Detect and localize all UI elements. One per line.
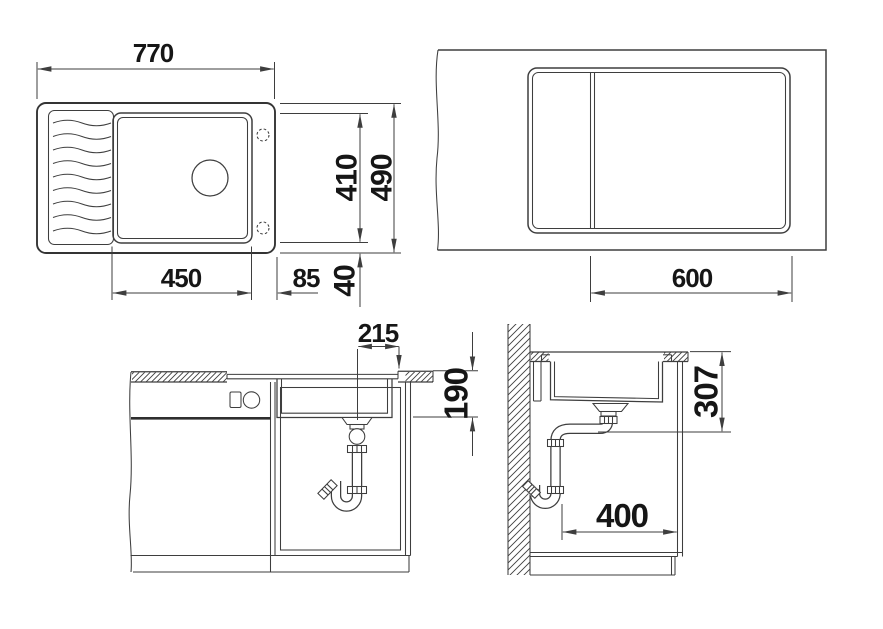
bowl-rim (113, 113, 252, 243)
counter-hatch-left (531, 352, 549, 361)
pipe-nut (548, 440, 564, 447)
countertop-cutout-plan-view: 600 (436, 50, 826, 302)
bowl-outer (277, 379, 392, 418)
dim-top-overall-depth: 490 (366, 154, 399, 201)
front-section-view: 215 190 (129, 318, 478, 572)
drainboard (49, 111, 114, 245)
dishwasher-display (230, 392, 241, 408)
pipe-nut (348, 487, 367, 494)
bowl-inner (282, 379, 388, 413)
dishwasher-knob (243, 392, 259, 408)
dim-top-bowl-length: 410 (331, 154, 364, 201)
bowl-inner (555, 362, 659, 399)
left-break-edge (129, 372, 131, 572)
drain-trap-front (318, 418, 372, 507)
sink-outline (37, 103, 275, 253)
dim-top-overall-width: 770 (133, 38, 174, 68)
cutout-outline (528, 68, 790, 233)
drain-flange (593, 404, 628, 412)
pipe-nut (600, 417, 617, 424)
sink-side-profile (534, 355, 672, 402)
wall-hatch (508, 324, 530, 575)
side-section-view: 307 400 (508, 324, 731, 575)
pipe-nut (348, 446, 367, 453)
sink-drawing-svg: 770 410 490 40 450 85 600 (0, 0, 883, 629)
countertop-outline (438, 50, 827, 250)
tap-hole-bottom (257, 222, 269, 234)
dim-side-drain-height: 307 (688, 366, 725, 418)
countertop-hatch-left (132, 372, 227, 381)
dim-side-clearance-depth: 400 (596, 497, 648, 534)
cutout-inner-line (533, 73, 786, 229)
sink-top-view: 770 410 490 40 450 85 (37, 38, 401, 307)
drain-hole (192, 160, 228, 196)
bowl-outer (551, 362, 663, 403)
counter-hatch-right (664, 352, 688, 361)
dim-top-edge-gap: 40 (329, 265, 362, 297)
drain-ball-joint (349, 429, 365, 445)
dim-top-right-offset: 85 (293, 263, 320, 293)
dim-front-bowl-depth: 190 (438, 368, 475, 420)
technical-drawing-canvas: 770 410 490 40 450 85 600 (0, 0, 883, 629)
drainboard-ribs (53, 120, 111, 234)
dim-top-bowl-width: 450 (161, 263, 202, 293)
dishwasher-front (131, 382, 275, 556)
sink-front-profile (227, 371, 398, 417)
tap-hole-top (257, 129, 269, 141)
countertop-break-edge (436, 50, 438, 250)
dim-front-drain-offset: 215 (358, 318, 399, 348)
dim-plan-cabinet-width: 600 (672, 263, 713, 293)
pipe-nut (548, 487, 564, 494)
cabinet-door (281, 388, 401, 551)
countertop-hatch-right (406, 372, 434, 382)
drain-trap-side (523, 404, 628, 504)
